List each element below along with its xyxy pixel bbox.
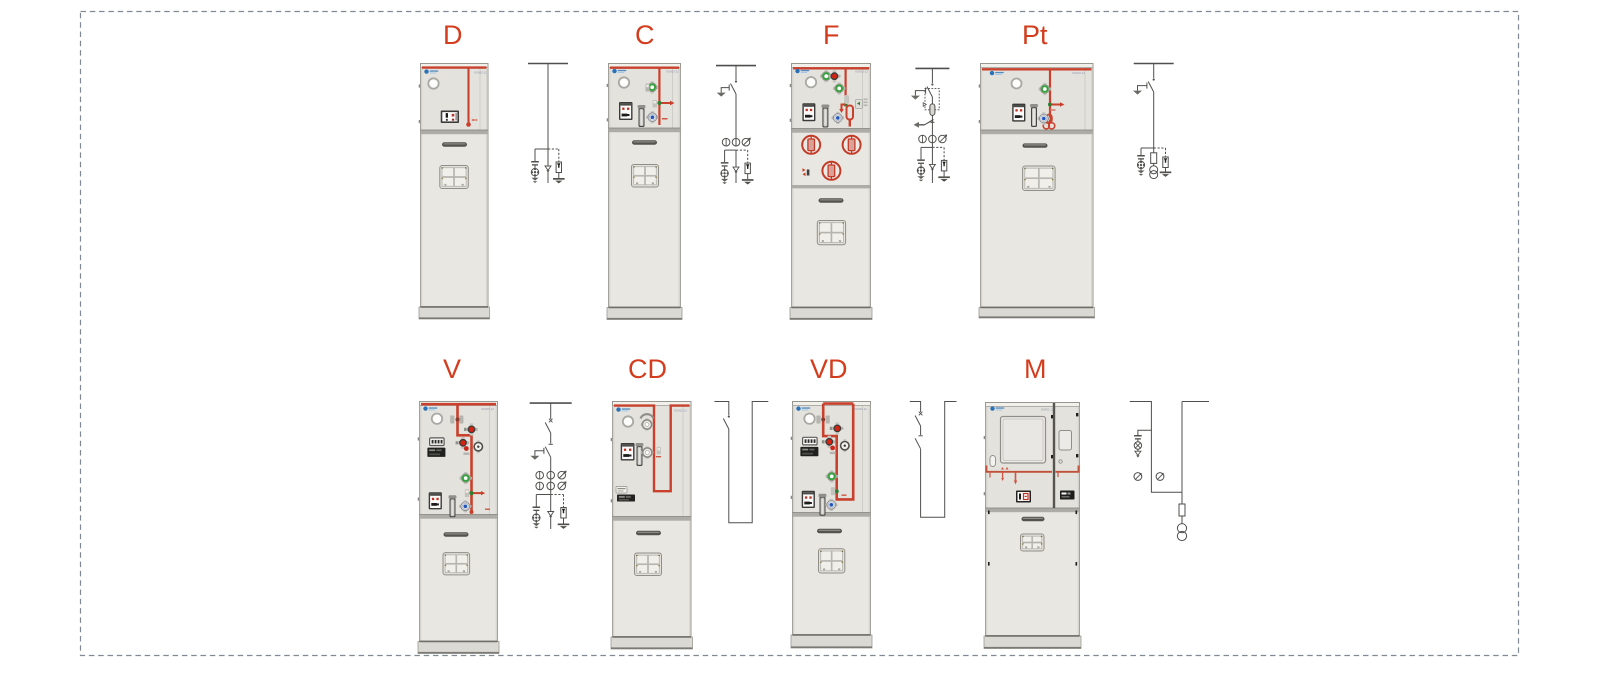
svg-text:XGN15-12: XGN15-12 bbox=[855, 69, 868, 73]
svg-text:XGN15-12: XGN15-12 bbox=[1072, 71, 1085, 75]
svg-text:XGN15-12: XGN15-12 bbox=[674, 409, 687, 413]
svg-text:XGN15-12: XGN15-12 bbox=[481, 407, 494, 411]
svg-text:XGN15-12: XGN15-12 bbox=[474, 71, 487, 75]
svg-text:XGN15-12: XGN15-12 bbox=[666, 69, 679, 73]
svg-text:DNF01-12: DNF01-12 bbox=[1041, 408, 1054, 412]
svg-text:XGN15-12: XGN15-12 bbox=[854, 407, 867, 411]
